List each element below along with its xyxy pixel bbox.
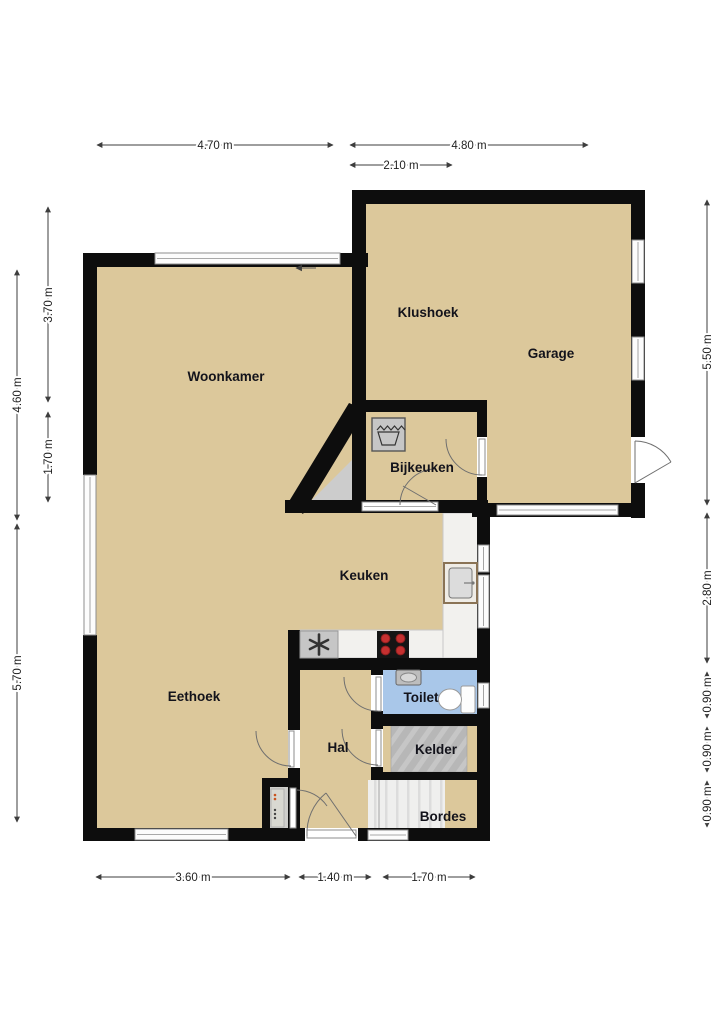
floor-plan-page: Woonkamer Klushoek Garage Bijkeuken Keuk… (0, 0, 724, 1024)
room-label-bijkeuken: Bijkeuken (390, 460, 454, 475)
dimension-label: 0.90 m (702, 786, 714, 821)
dimension-left-outer-2: 5.70 m (12, 524, 24, 822)
dimension-label: 3.70 m (43, 287, 55, 322)
washing-machine-icon (372, 418, 405, 451)
dimension-label: 1.70 m (411, 872, 446, 884)
dimension-label: 0.90 m (702, 731, 714, 766)
meter-cabinet-panel (271, 789, 284, 827)
room-label-klushoek: Klushoek (398, 305, 459, 320)
room-label-bordes: Bordes (420, 809, 467, 824)
dimension-left-inner-1: 3.70 m (43, 207, 55, 402)
floor-plan-canvas: Woonkamer Klushoek Garage Bijkeuken Keuk… (0, 0, 724, 1024)
kitchen-sink-icon (444, 563, 477, 603)
dimension-label: 3.60 m (175, 872, 210, 884)
dimension-top-3: 2.10 m (350, 160, 452, 172)
room-label-garage: Garage (528, 346, 575, 361)
room-label-eethoek: Eethoek (168, 689, 221, 704)
dimension-label: 1.70 m (43, 439, 55, 474)
window (478, 683, 489, 708)
dimension-label: 4.60 m (12, 377, 24, 412)
dimension-right-4: 0.90 m (702, 727, 714, 772)
room-label-toilet: Toilet (404, 690, 440, 705)
room-label-kelder: Kelder (415, 742, 458, 757)
extractor-fan-icon (300, 631, 338, 658)
dimension-right-1: 5.50 m (702, 200, 714, 505)
hand-basin-icon (396, 670, 421, 685)
dimension-label: 4.70 m (197, 140, 232, 152)
dimension-top-2: 4.80 m (350, 140, 588, 152)
window (84, 475, 96, 635)
room-label-hal: Hal (327, 740, 348, 755)
dimension-label: 2.80 m (702, 570, 714, 605)
window (478, 545, 489, 572)
dimension-label: 1.40 m (317, 872, 352, 884)
cooktop-icon (377, 631, 409, 658)
dimension-label: 5.70 m (12, 655, 24, 690)
dimension-bottom-3: 1.70 m (383, 872, 475, 884)
dimension-label: 4.80 m (451, 140, 486, 152)
window (497, 505, 618, 515)
window (632, 240, 644, 283)
window (135, 829, 228, 840)
dimension-right-3: 0.90 m (702, 672, 714, 718)
dimension-label: 2.10 m (383, 160, 418, 172)
window (478, 575, 489, 628)
dimension-top-1: 4.70 m (97, 140, 333, 152)
dimension-bottom-2: 1.40 m (299, 872, 371, 884)
dimension-right-5: 0.90 m (702, 781, 714, 827)
room-label-keuken: Keuken (340, 568, 389, 583)
dimension-left-inner-2: 1.70 m (43, 412, 55, 502)
dimension-label: 0.90 m (702, 677, 714, 712)
door (631, 437, 671, 483)
window (155, 253, 340, 264)
dimension-label: 5.50 m (702, 334, 714, 369)
window (368, 830, 408, 840)
dimension-right-2: 2.80 m (702, 513, 714, 663)
room-label-woonkamer: Woonkamer (187, 369, 265, 384)
dimension-left-outer-1: 4.60 m (12, 270, 24, 520)
window (632, 337, 644, 380)
dimension-bottom-1: 3.60 m (96, 872, 290, 884)
